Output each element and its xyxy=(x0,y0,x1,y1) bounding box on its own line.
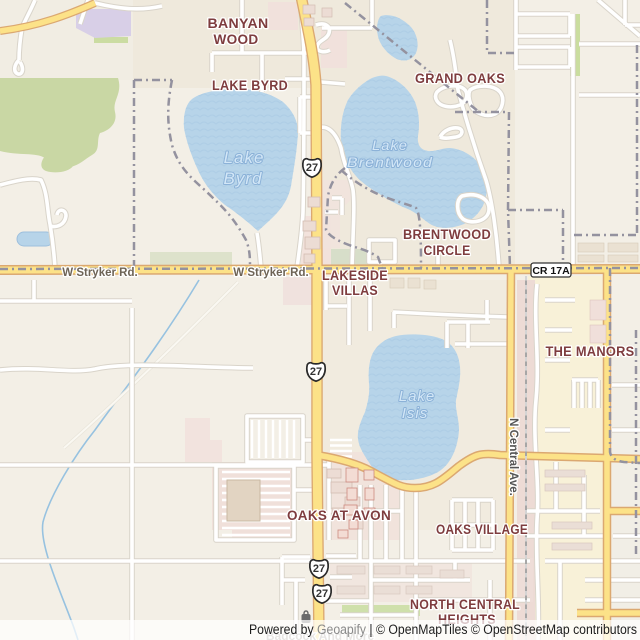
svg-text:Isis: Isis xyxy=(402,405,429,422)
svg-text:CR 17A: CR 17A xyxy=(532,265,570,277)
svg-text:Lake: Lake xyxy=(224,148,265,167)
svg-text:CIRCLE: CIRCLE xyxy=(424,243,471,258)
svg-text:LAKESIDE: LAKESIDE xyxy=(322,268,388,283)
svg-text:NORTH CENTRAL: NORTH CENTRAL xyxy=(410,597,520,612)
svg-text:OAKS AT AVON: OAKS AT AVON xyxy=(287,508,391,523)
svg-text:OAKS VILLAGE: OAKS VILLAGE xyxy=(436,522,528,537)
svg-text:BRENTWOOD: BRENTWOOD xyxy=(403,227,491,242)
svg-text:27: 27 xyxy=(306,162,318,174)
svg-text:GRAND OAKS: GRAND OAKS xyxy=(415,71,505,86)
svg-text:Lake: Lake xyxy=(372,137,408,153)
svg-text:W Stryker Rd.: W Stryker Rd. xyxy=(62,267,137,279)
svg-text:W Stryker Rd.: W Stryker Rd. xyxy=(233,267,308,279)
svg-text:Powered by Geoapify | © OpenMa: Powered by Geoapify | © OpenMapTiles © O… xyxy=(249,622,637,637)
svg-text:N Central Ave.: N Central Ave. xyxy=(507,418,519,496)
svg-text:WOOD: WOOD xyxy=(214,32,259,47)
svg-text:Lake: Lake xyxy=(399,388,436,405)
svg-text:THE MANORS: THE MANORS xyxy=(546,344,635,359)
svg-text:VILLAS: VILLAS xyxy=(332,283,378,298)
svg-text:Byrd: Byrd xyxy=(224,169,263,188)
svg-text:LAKE BYRD: LAKE BYRD xyxy=(212,78,288,93)
svg-text:Brentwood: Brentwood xyxy=(347,154,433,170)
svg-text:BANYAN: BANYAN xyxy=(208,16,269,31)
